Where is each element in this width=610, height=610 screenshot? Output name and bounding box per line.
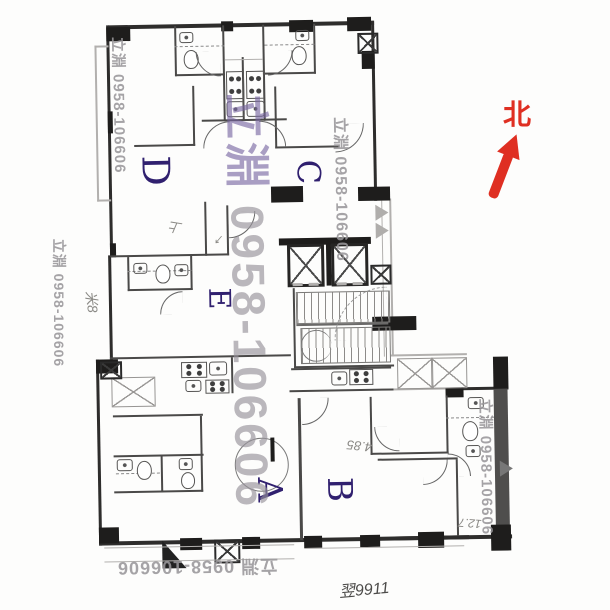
wall-segment bbox=[96, 360, 102, 546]
wall-segment bbox=[161, 455, 164, 493]
wall-segment bbox=[291, 367, 391, 371]
column bbox=[493, 356, 509, 388]
wall-segment bbox=[114, 490, 203, 494]
balcony-edge bbox=[97, 199, 111, 201]
column bbox=[360, 535, 380, 547]
balcony-edge bbox=[94, 46, 99, 202]
column bbox=[347, 17, 371, 31]
column bbox=[242, 537, 260, 549]
wall-segment bbox=[190, 256, 193, 290]
elevator-door bbox=[293, 283, 303, 286]
door-arc bbox=[160, 291, 183, 314]
balcony-hatch bbox=[431, 357, 468, 389]
balcony-edge bbox=[391, 353, 467, 356]
stove-icon bbox=[181, 362, 207, 378]
stove-icon bbox=[349, 369, 373, 385]
sink-icon bbox=[117, 459, 133, 471]
pencil-note-bottom: 翌9911 bbox=[338, 574, 390, 602]
pencil-note: 12.7 bbox=[458, 515, 482, 531]
watermark: 立淵 0958-106606 bbox=[475, 398, 498, 535]
wall-segment bbox=[174, 26, 177, 76]
shaft-icon bbox=[370, 264, 391, 284]
wall-segment bbox=[289, 388, 393, 392]
wall-segment bbox=[128, 288, 193, 291]
sink-icon bbox=[185, 380, 201, 392]
pencil-note: 米8 bbox=[81, 290, 103, 314]
sink-icon bbox=[133, 263, 147, 274]
elevator-door bbox=[309, 283, 319, 286]
wall-segment bbox=[371, 452, 449, 455]
column bbox=[445, 387, 463, 397]
sink-icon bbox=[179, 458, 193, 470]
wall-segment bbox=[113, 414, 203, 418]
sink-icon bbox=[295, 30, 309, 41]
elevator-door bbox=[337, 282, 347, 285]
watermark: 立淵 0958-106606 bbox=[117, 554, 279, 583]
north-label: 北 bbox=[503, 93, 531, 133]
wall-segment bbox=[446, 396, 449, 454]
column bbox=[99, 527, 119, 543]
watermark: 立淵 0958-106606 bbox=[108, 37, 131, 174]
wall-dashed bbox=[264, 44, 314, 46]
toilet-icon bbox=[291, 46, 306, 65]
wall-segment bbox=[108, 21, 374, 30]
watermark: 立淵 0958-106606 bbox=[330, 117, 357, 262]
vent-mark bbox=[376, 223, 389, 239]
pencil-note: 上 bbox=[168, 218, 184, 239]
shaft-icon bbox=[357, 33, 378, 54]
floor-plan-scan: D C E A B 立淵 0958-106606 立淵 0958-106606 … bbox=[0, 0, 610, 610]
sink-icon bbox=[174, 264, 188, 276]
unit-label-c: C bbox=[289, 159, 327, 184]
balcony-edge bbox=[94, 45, 108, 47]
toilet-icon bbox=[181, 472, 195, 489]
door-arc bbox=[302, 398, 329, 425]
toilet-icon bbox=[155, 264, 170, 283]
door-arc bbox=[423, 460, 448, 485]
balcony-hatch bbox=[111, 377, 156, 408]
vent-mark bbox=[375, 205, 388, 221]
watermark-large: 立淵0958-106606 bbox=[215, 92, 288, 509]
column bbox=[304, 536, 322, 548]
wall-segment bbox=[114, 454, 204, 458]
wall-segment bbox=[313, 24, 316, 74]
watermark: 立淵 0958-106606 bbox=[49, 239, 69, 367]
building-plan: D C E A B 立淵 0958-106606 立淵 0958-106606 … bbox=[0, 0, 610, 610]
door-arc bbox=[374, 426, 399, 451]
column bbox=[358, 186, 390, 201]
unit-label-b: B bbox=[319, 477, 359, 503]
balcony-hatch bbox=[100, 361, 122, 379]
wall-dashed bbox=[174, 45, 224, 47]
sink-icon bbox=[179, 32, 193, 43]
toilet-icon bbox=[137, 461, 152, 480]
vent-mark bbox=[500, 460, 513, 476]
wall-segment bbox=[192, 86, 195, 146]
wall-segment bbox=[204, 202, 207, 256]
wall-segment bbox=[108, 255, 113, 363]
elevator-door bbox=[353, 282, 363, 285]
sink-icon bbox=[331, 371, 347, 385]
wall-segment bbox=[134, 144, 195, 147]
balcony-hatch bbox=[397, 358, 434, 390]
pencil-note: 4.85 bbox=[346, 437, 373, 455]
elevator-icon bbox=[287, 244, 325, 288]
watermark-phone: 0958-106606 bbox=[221, 204, 278, 509]
unit-label-d: D bbox=[133, 155, 178, 186]
wall-segment bbox=[127, 257, 130, 291]
watermark-brand: 立淵 bbox=[219, 92, 273, 191]
